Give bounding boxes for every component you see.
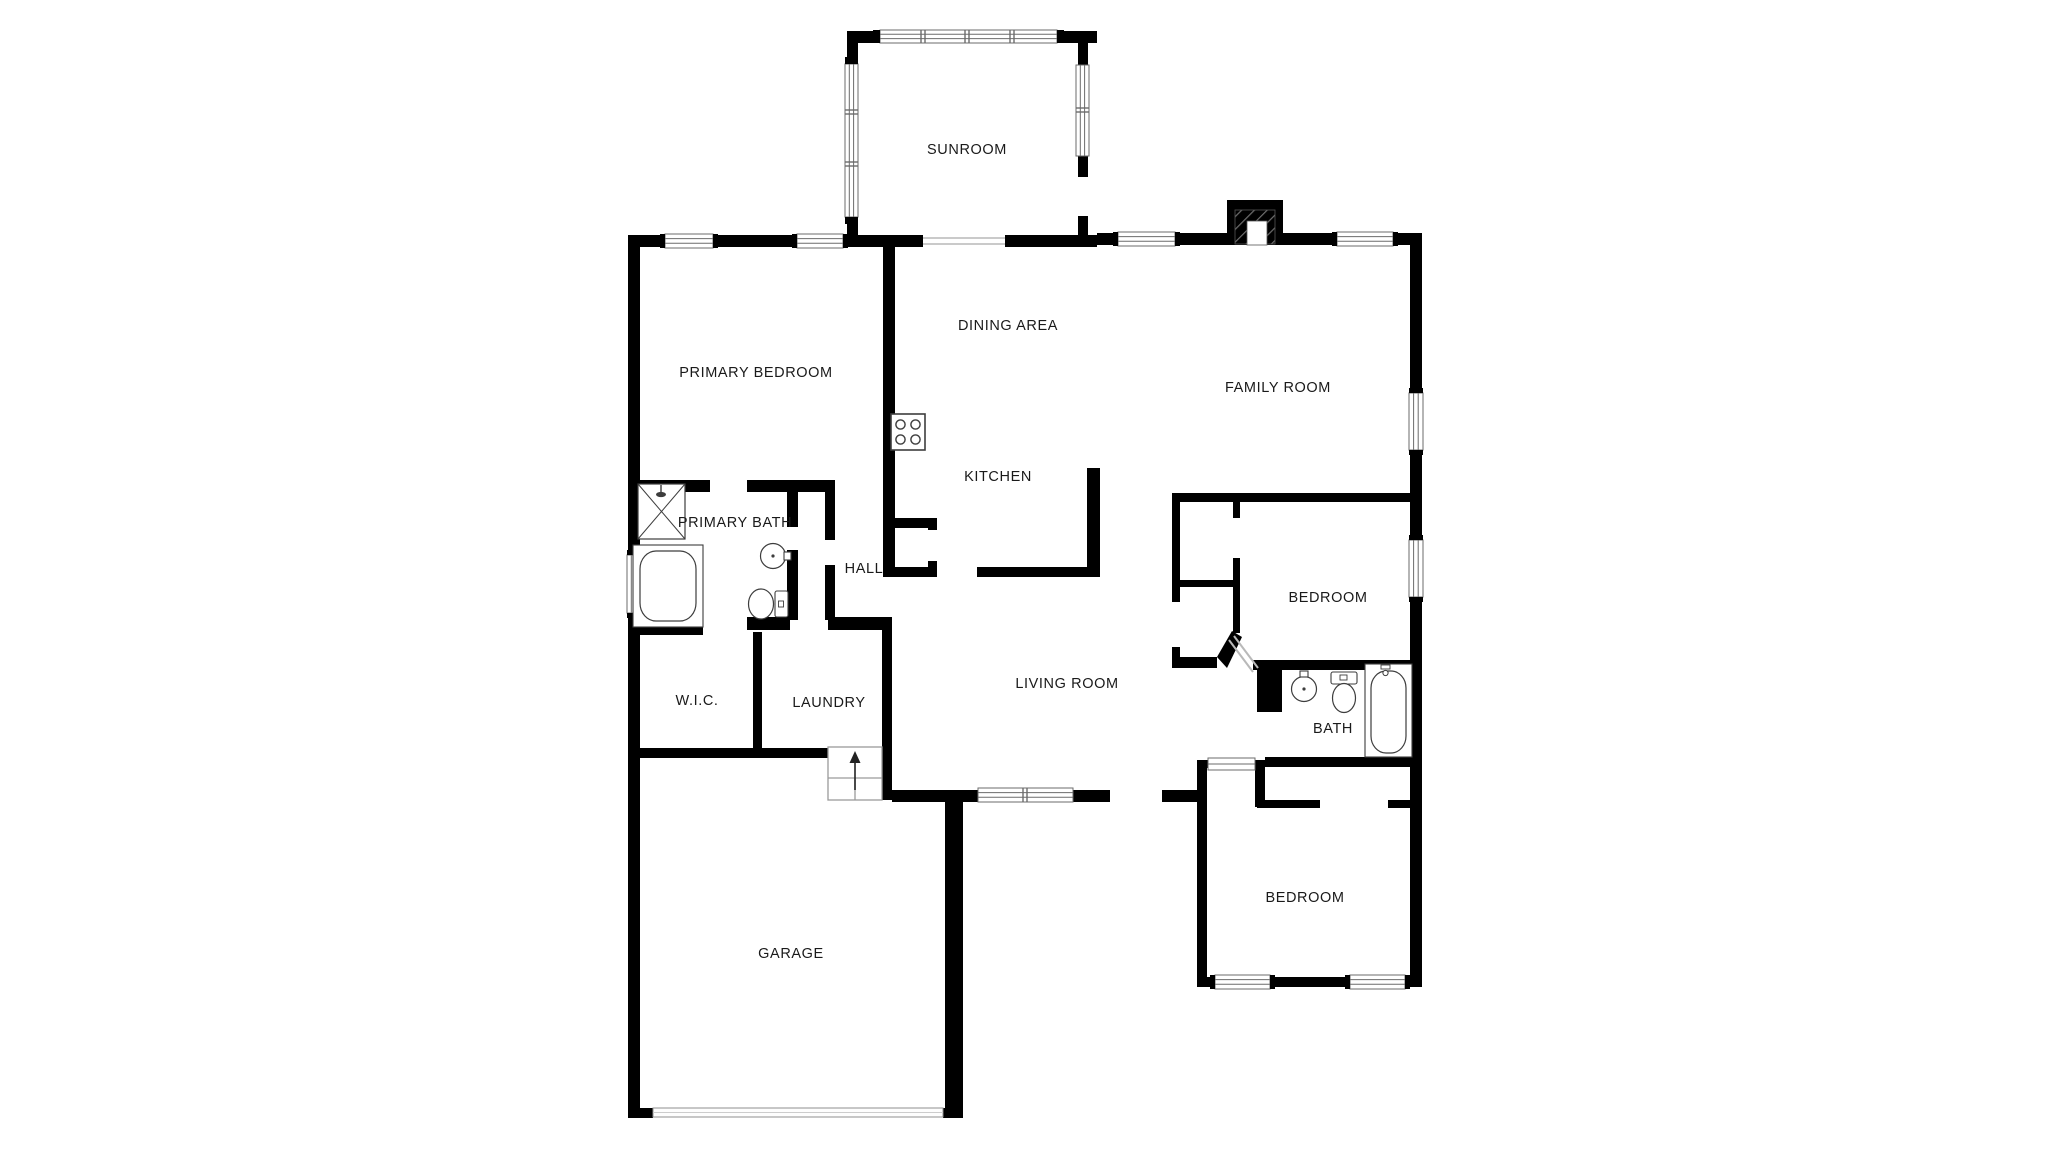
wall-vestibule-bottom [1172, 657, 1217, 668]
wall-garage-bottom-right-stub [943, 1108, 963, 1118]
wall-sunroom-right-a [1078, 41, 1088, 65]
room-label-sunroom: SUNROOM [927, 142, 1007, 158]
fixtures [633, 414, 1412, 757]
wall-bedroom-lower-top-a [1257, 800, 1320, 808]
wall-bath-wedge [1257, 666, 1282, 712]
bathtub-icon [1365, 664, 1412, 757]
window [660, 234, 718, 248]
wall-top-mid-a [858, 235, 923, 247]
openings [923, 238, 1258, 672]
wall-kitchen-east [1087, 468, 1100, 577]
room-label-family-room: FAMILY ROOM [1225, 380, 1331, 396]
floor-plan-drawing: SUNROOM DINING AREA FAMILY ROOM PRIMARY … [0, 0, 2048, 1151]
sink-icon [1292, 671, 1317, 702]
room-label-wic: W.I.C. [675, 693, 718, 709]
wall-stair-side [882, 748, 892, 800]
wall-pantry-bottom [883, 567, 937, 577]
sink-icon [761, 544, 792, 569]
wall-bedroom-lower-top-b [1388, 800, 1412, 808]
window-band [845, 57, 858, 224]
wall-wic-laundry-divider [753, 632, 762, 748]
wall-living-bottom-b [1073, 790, 1110, 802]
wall-vestibule-diagonal [1217, 631, 1242, 668]
room-label-bedroom-lower: BEDROOM [1265, 890, 1344, 906]
room-label-living-room: LIVING ROOM [1015, 676, 1118, 692]
wall-sunroom-right-b [1078, 156, 1088, 177]
room-label-hall: HALL [845, 561, 884, 577]
wall-hall-west-a [825, 487, 835, 540]
wall-kitchen-bottom [977, 567, 1097, 577]
stove-icon [891, 414, 925, 450]
window [1409, 388, 1423, 455]
window [1113, 232, 1180, 246]
room-label-garage: GARAGE [758, 946, 824, 962]
wall-garage-bottom-left-stub [628, 1108, 653, 1118]
wall-hall-west-b [825, 565, 835, 620]
wall-entry-stub [1255, 760, 1265, 807]
room-label-primary-bath: PRIMARY BATH [678, 515, 792, 531]
toilet-icon [749, 589, 789, 619]
wall-living-bottom-c [1162, 790, 1197, 802]
fireplace-icon [1227, 200, 1283, 245]
wall-garage-right [945, 800, 963, 1118]
wall-laundry-east [882, 617, 892, 748]
window-band [873, 30, 1064, 43]
stairs-up-icon [828, 747, 882, 800]
wall-pantry-east-a [928, 518, 937, 530]
window [1409, 535, 1423, 602]
wall-bedroom-middle-top [1172, 493, 1412, 502]
window [1210, 975, 1275, 989]
wall-garage-top [640, 748, 828, 758]
wall-bedroom-middle-west-inner-b [1233, 558, 1240, 633]
window [1345, 975, 1410, 989]
wall-living-bottom-a [892, 790, 978, 802]
window [792, 234, 848, 248]
bathtub-icon [633, 545, 703, 627]
wall-laundry-top-a [747, 617, 790, 630]
window-band [1076, 65, 1089, 156]
wall-bedroom-middle-west-inner-a [1233, 502, 1240, 518]
wall-top-mid-b [1005, 235, 1097, 247]
wall-bedroom-lower-left [1197, 760, 1207, 987]
garage-door [653, 1108, 943, 1117]
wall-closet-divider [1180, 580, 1237, 587]
window-band [978, 788, 1073, 802]
wall-primary-bedroom-bottom-b [747, 480, 835, 492]
room-label-bath: BATH [1313, 721, 1353, 737]
room-label-primary-bedroom: PRIMARY BEDROOM [679, 365, 833, 381]
toilet-icon [1331, 672, 1357, 713]
wall-exterior-right [1410, 233, 1422, 987]
wall-bath-bottom [1265, 757, 1422, 767]
window [1332, 232, 1398, 246]
windows [627, 30, 1423, 989]
window [1208, 758, 1255, 770]
room-label-kitchen: KITCHEN [964, 469, 1032, 485]
room-label-laundry: LAUNDRY [792, 695, 865, 711]
wall-bedroom-middle-west-outer-a [1172, 493, 1180, 602]
walls [628, 31, 1422, 1118]
floor-plan-canvas: SUNROOM DINING AREA FAMILY ROOM PRIMARY … [0, 0, 2048, 1151]
room-label-bedroom-middle: BEDROOM [1288, 590, 1367, 606]
room-label-dining-area: DINING AREA [958, 318, 1058, 334]
wall-entry-top [1197, 760, 1208, 768]
wall-exterior-left [628, 235, 640, 1118]
